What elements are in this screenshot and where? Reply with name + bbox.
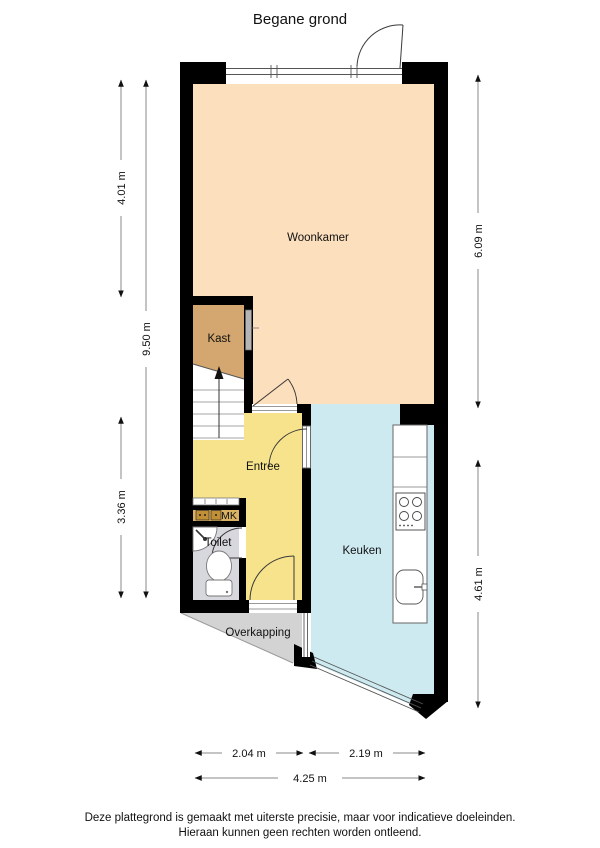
floor-plan-canvas: Begane grond — [0, 0, 600, 848]
keuken-top-wall-block — [400, 404, 434, 425]
top-window — [226, 63, 402, 83]
meterkast-label: MK — [221, 510, 237, 522]
dim-bottom-total: 4.25 m — [293, 773, 327, 785]
corner-block-right — [409, 694, 448, 719]
meterkast-door — [193, 498, 239, 505]
top-right-wall-block — [402, 62, 448, 84]
meterkast-symbols — [196, 511, 221, 521]
kast-label: Kast — [207, 333, 231, 345]
dim-left-upper: 4.01 m — [116, 171, 128, 205]
keuken-label: Keuken — [342, 545, 381, 557]
woonkamer-label: Woonkamer — [287, 232, 349, 244]
page-title: Begane grond — [253, 11, 347, 28]
kitchen-counter — [393, 425, 427, 623]
dim-bottom-left: 2.04 m — [232, 748, 266, 760]
sink — [396, 570, 427, 604]
entree-label: Entree — [246, 461, 280, 473]
footer-line-1: Deze plattegrond is gemaakt met uiterste… — [85, 812, 516, 824]
toilet-label: Toilet — [205, 537, 233, 549]
right-wall — [434, 62, 448, 702]
top-left-wall-block — [180, 62, 226, 84]
balcony-door — [357, 25, 403, 68]
overkapping-label: Overkapping — [225, 627, 290, 639]
dim-right-lower: 4.61 m — [473, 567, 485, 601]
side-window — [302, 613, 310, 657]
toilet-door-opening — [239, 527, 246, 558]
front-door-opening — [249, 600, 297, 613]
dim-left-total: 9.50 m — [141, 322, 153, 356]
dim-left-lower: 3.36 m — [116, 490, 128, 524]
dim-right-upper: 6.09 m — [473, 224, 485, 258]
woonkamer-door-opening — [252, 404, 297, 413]
wc — [206, 551, 232, 596]
kast-door-leaf — [246, 310, 252, 350]
dim-bottom-right: 2.19 m — [349, 748, 383, 760]
left-wall — [180, 62, 193, 613]
stove — [396, 493, 425, 530]
footer-line-2: Hieraan kunnen geen rechten worden ontle… — [179, 827, 422, 839]
footer: Deze plattegrond is gemaakt met uiterste… — [85, 812, 516, 839]
